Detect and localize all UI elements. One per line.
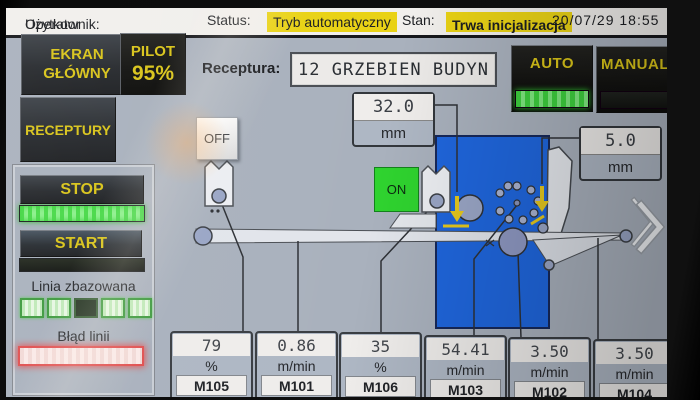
meter-unit: % [341,358,420,376]
manual-mode-button[interactable]: MANUAL [596,46,667,113]
knife-gap-setpoint[interactable]: 5.0 mm [579,126,662,181]
axis-homed-indicator [74,298,98,318]
meter-value[interactable]: 54.41 [427,338,504,360]
conveyor-belt [196,229,626,266]
meter-unit: m/min [510,363,589,381]
meter-m101: 0.86 m/min M101 [255,331,338,397]
line-control-panel: STOP START Linia zbazowana Błąd linii [13,165,154,395]
user-field-value: Operator [25,16,80,32]
meter-m104: 3.50 m/min M104 [593,339,667,397]
next-page-chevron-icon[interactable] [634,200,660,249]
meter-m103: 54.41 m/min M103 [424,335,507,397]
meter-value[interactable]: 35 [342,335,419,357]
manual-mode-indicator [600,91,667,109]
comb-gap-unit: mm [354,121,433,145]
meter-motor-label: M101 [261,375,332,396]
meter-motor-label: M106 [345,376,416,397]
line-homed-label: Linia zbazowana [15,278,152,294]
auto-label: AUTO [530,55,574,72]
meter-m105: 79 % M105 [170,331,253,397]
comb-gap-setpoint[interactable]: 32.0 mm [352,92,435,147]
pilot-button[interactable]: PILOT 95% [120,33,186,95]
status-label: Status: [207,12,251,28]
line-homed-indicators [20,298,152,318]
meter-value[interactable]: 3.50 [511,340,588,362]
status-value-badge: Tryb automatyczny [267,12,397,32]
hmi-screen: Użytkownik:Operator Status: Tryb automat… [6,8,667,397]
datetime: 20/07/29 18:55 [552,12,659,28]
meter-value[interactable]: 3.50 [596,342,667,364]
meter-value[interactable]: 0.86 [258,334,335,356]
start-button[interactable]: START [20,230,142,257]
axis-homed-indicator [101,298,125,318]
recipe-label: Receptura: [202,60,280,77]
meter-value[interactable]: 79 [173,334,250,356]
comb-gap-value[interactable]: 32.0 [354,94,433,121]
guillotine-off-button[interactable]: OFF [196,117,238,160]
axis-homed-indicator [47,298,71,318]
meter-motor-label: M104 [599,383,667,397]
stop-indicator [19,205,145,222]
meter-unit: m/min [426,361,505,379]
axis-homed-indicator [128,298,152,318]
pilot-value: 95% [132,62,174,86]
recipe-value-field[interactable]: 12 GRZEBIEN BUDYN [290,52,497,87]
stop-button[interactable]: STOP [20,175,144,204]
infeed-chute [390,214,436,228]
knife-gap-value[interactable]: 5.0 [581,128,660,155]
meter-unit: m/min [595,365,667,383]
knife-gap-unit: mm [581,155,660,179]
auto-mode-button[interactable]: AUTO [511,45,593,112]
meter-motor-label: M102 [514,381,585,397]
auto-mode-indicator [515,90,589,108]
line-error-indicator [18,346,144,366]
meter-unit: m/min [257,357,336,375]
guillotine-left [205,161,233,213]
meter-m102: 3.50 m/min M102 [508,337,591,397]
recipes-button[interactable]: RECEPTURY [20,97,116,162]
meter-unit: % [172,357,251,375]
main-screen-button[interactable]: EKRAN GŁÓWNY [21,34,133,95]
start-indicator [19,258,145,272]
manual-label: MANUAL [601,56,667,73]
axis-homed-indicator [20,298,44,318]
state-label: Stan: [402,12,435,28]
meter-motor-label: M105 [176,375,247,396]
guillotine-on-button[interactable]: ON [374,167,419,212]
meter-m106: 35 % M106 [339,332,422,397]
meter-motor-label: M103 [430,379,501,397]
pilot-label: PILOT [131,43,175,60]
press-roller [457,195,483,221]
line-error-label: Błąd linii [15,328,152,344]
